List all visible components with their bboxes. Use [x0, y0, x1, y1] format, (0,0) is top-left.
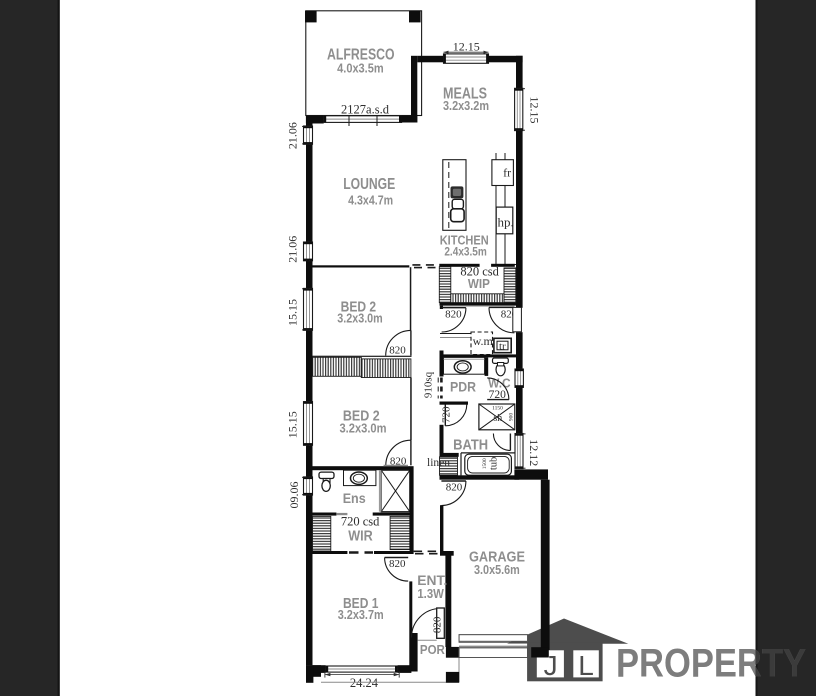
svg-text:Ens: Ens [343, 490, 366, 506]
svg-text:820: 820 [446, 482, 463, 494]
svg-text:1150: 1150 [492, 406, 503, 412]
svg-text:3.0x5.6m: 3.0x5.6m [474, 562, 520, 577]
svg-text:w.m: w.m [473, 334, 494, 348]
svg-text:900: 900 [508, 413, 514, 422]
svg-text:21.06: 21.06 [286, 236, 300, 263]
svg-text:BATH: BATH [453, 437, 488, 453]
svg-text:3.2x3.2m: 3.2x3.2m [443, 98, 489, 113]
svg-text:12.15: 12.15 [453, 40, 480, 54]
svg-text:910sq: 910sq [422, 371, 434, 398]
svg-text:WIR: WIR [348, 527, 373, 544]
svg-text:sh: sh [493, 413, 502, 424]
svg-text:21.06: 21.06 [286, 122, 300, 149]
svg-text:15.15: 15.15 [286, 411, 300, 438]
svg-text:L: L [578, 650, 594, 681]
svg-text:4.0x3.5m: 4.0x3.5m [337, 61, 384, 76]
svg-text:820: 820 [389, 558, 406, 570]
svg-text:820: 820 [432, 616, 444, 633]
svg-text:1500: 1500 [482, 458, 488, 469]
svg-text:1.3W: 1.3W [417, 586, 444, 601]
svg-text:POR: POR [420, 642, 446, 657]
svg-text:hp.: hp. [498, 215, 514, 230]
svg-text:820: 820 [389, 344, 406, 356]
svg-text:2127a.s.d: 2127a.s.d [341, 102, 390, 116]
svg-text:15.15: 15.15 [286, 299, 300, 326]
svg-text:tub: tub [489, 457, 500, 470]
svg-text:tr: tr [499, 341, 506, 353]
svg-text:4.3x4.7m: 4.3x4.7m [348, 192, 393, 207]
svg-text:WIP: WIP [468, 276, 490, 291]
svg-text:KITCHEN: KITCHEN [440, 233, 489, 247]
svg-text:12.15: 12.15 [527, 97, 541, 124]
svg-text:fr: fr [503, 166, 511, 180]
svg-text:820: 820 [445, 308, 462, 320]
svg-text:LOUNGE: LOUNGE [343, 176, 395, 193]
svg-text:09.06: 09.06 [287, 482, 301, 509]
svg-text:12.12: 12.12 [527, 439, 541, 466]
svg-text:3.2x3.0m: 3.2x3.0m [340, 421, 387, 435]
svg-text:PDR: PDR [450, 379, 476, 395]
svg-text:3.2x3.7m: 3.2x3.7m [338, 608, 384, 622]
svg-text:720: 720 [441, 406, 453, 423]
svg-text:2.4x3.5m: 2.4x3.5m [444, 247, 487, 259]
svg-text:24.24: 24.24 [350, 676, 379, 690]
svg-text:linen: linen [427, 457, 450, 469]
svg-text:3.2x3.0m: 3.2x3.0m [337, 312, 383, 326]
